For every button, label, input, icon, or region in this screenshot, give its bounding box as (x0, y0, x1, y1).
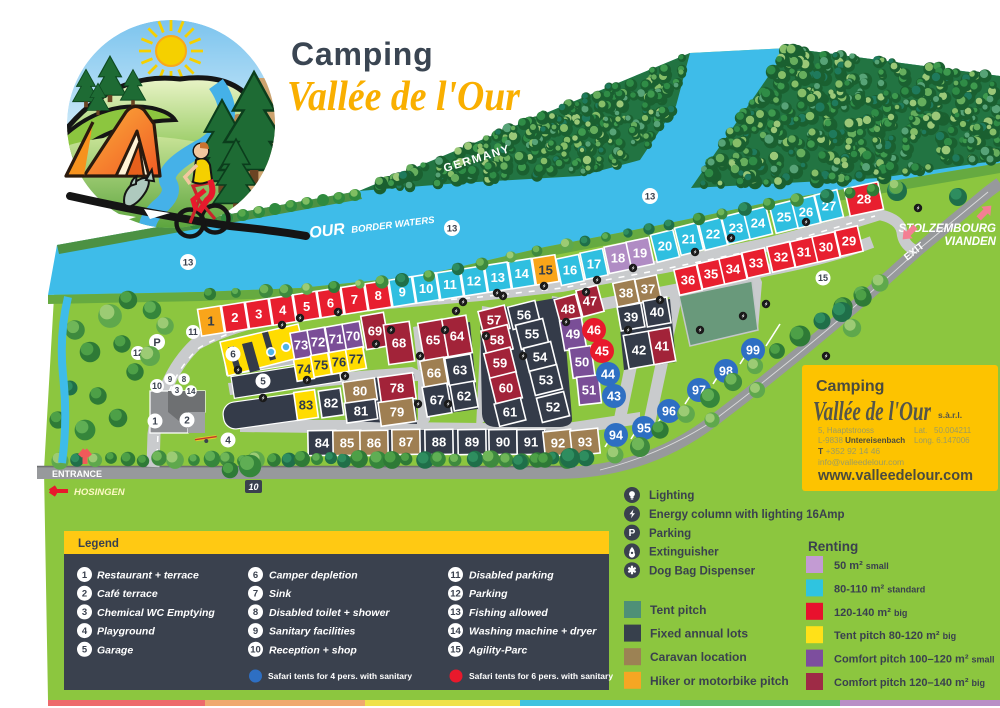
svg-text:13: 13 (447, 224, 458, 235)
svg-text:15: 15 (818, 273, 828, 283)
svg-text:80: 80 (353, 384, 367, 399)
svg-text:77: 77 (349, 352, 363, 367)
svg-text:83: 83 (299, 398, 313, 413)
svg-text:Hiker or motorbike pitch: Hiker or motorbike pitch (650, 674, 789, 688)
svg-text:91: 91 (524, 435, 538, 450)
svg-text:VIANDEN: VIANDEN (944, 236, 996, 248)
svg-text:75: 75 (314, 358, 328, 373)
svg-text:Energy column with lighting 16: Energy column with lighting 16Amp (649, 509, 845, 521)
svg-text:2: 2 (184, 416, 190, 427)
svg-text:Caravan location: Caravan location (650, 650, 747, 664)
svg-text:Disabled parking: Disabled parking (469, 570, 554, 582)
svg-text:ENTRANCE: ENTRANCE (52, 469, 102, 479)
svg-text:Comfort pitch 120–140 m² big: Comfort pitch 120–140 m² big (834, 677, 985, 689)
svg-text:14: 14 (450, 626, 461, 637)
svg-text:8: 8 (253, 607, 258, 618)
svg-text:49: 49 (566, 327, 580, 342)
svg-text:36: 36 (681, 273, 695, 288)
svg-text:9: 9 (168, 375, 173, 384)
svg-text:19: 19 (633, 246, 647, 261)
svg-text:76: 76 (332, 355, 346, 370)
svg-text:15: 15 (538, 263, 552, 278)
svg-text:✱: ✱ (627, 565, 636, 577)
svg-text:4: 4 (279, 303, 287, 318)
svg-text:7: 7 (351, 292, 358, 307)
svg-text:72: 72 (311, 335, 325, 350)
svg-text:Agility-Parc: Agility-Parc (468, 644, 528, 656)
svg-text:5, Haaptstrooss: 5, Haaptstrooss (818, 426, 874, 435)
svg-text:1: 1 (152, 417, 158, 428)
svg-text:Playground: Playground (97, 626, 155, 638)
svg-text:60: 60 (499, 381, 513, 396)
svg-text:80-110 m² standard: 80-110 m² standard (834, 583, 925, 595)
svg-text:3: 3 (82, 607, 87, 618)
svg-text:25: 25 (777, 210, 791, 225)
svg-text:Legend: Legend (78, 538, 119, 550)
svg-text:Lighting: Lighting (649, 490, 694, 502)
svg-text:39: 39 (624, 310, 638, 325)
svg-text:82: 82 (324, 396, 338, 411)
svg-text:3: 3 (255, 306, 262, 321)
svg-text:67: 67 (430, 393, 444, 408)
svg-text:T +352 92 14 46: T +352 92 14 46 (818, 446, 880, 456)
svg-text:51: 51 (582, 383, 596, 398)
svg-text:34: 34 (726, 262, 741, 277)
svg-text:10: 10 (250, 645, 261, 656)
svg-text:12: 12 (467, 274, 481, 289)
svg-text:Fishing allowed: Fishing allowed (469, 607, 548, 619)
svg-text:41: 41 (655, 339, 669, 354)
svg-text:10: 10 (419, 281, 433, 296)
svg-text:Camper depletion: Camper depletion (269, 570, 358, 582)
svg-text:92: 92 (551, 436, 565, 451)
svg-text:20: 20 (658, 239, 672, 254)
svg-text:68: 68 (392, 336, 406, 351)
svg-text:95: 95 (637, 421, 651, 435)
svg-text:5: 5 (260, 377, 266, 388)
svg-text:7: 7 (253, 589, 258, 600)
svg-text:59: 59 (493, 356, 507, 371)
svg-text:10: 10 (152, 381, 162, 391)
svg-text:62: 62 (457, 389, 471, 404)
svg-text:46: 46 (587, 323, 601, 337)
svg-text:18: 18 (611, 251, 625, 266)
svg-text:15: 15 (450, 645, 461, 656)
svg-text:Vallée de l'Our: Vallée de l'Our (287, 74, 521, 120)
svg-text:35: 35 (704, 267, 718, 282)
svg-text:42: 42 (632, 343, 646, 358)
svg-text:Garage: Garage (97, 644, 133, 656)
svg-text:13: 13 (450, 607, 461, 618)
svg-text:120-140 m² big: 120-140 m² big (834, 607, 907, 619)
svg-text:48: 48 (561, 302, 575, 317)
svg-text:85: 85 (340, 436, 354, 451)
svg-text:Dog Bag Dispenser: Dog Bag Dispenser (649, 565, 756, 577)
svg-text:87: 87 (399, 435, 413, 450)
svg-text:6: 6 (253, 570, 258, 581)
svg-text:17: 17 (587, 257, 601, 272)
svg-text:69: 69 (368, 324, 382, 339)
svg-text:Safari tents for 4 pers. with: Safari tents for 4 pers. with sanitary (268, 671, 412, 681)
svg-text:79: 79 (390, 405, 404, 420)
svg-text:Camping: Camping (816, 378, 884, 395)
svg-text:43: 43 (607, 389, 621, 403)
svg-text:1: 1 (207, 314, 214, 329)
svg-text:Long. 6.147006: Long. 6.147006 (914, 436, 970, 445)
svg-text:4: 4 (225, 436, 231, 447)
svg-text:50: 50 (575, 355, 589, 370)
svg-text:22: 22 (706, 227, 720, 242)
svg-text:73: 73 (294, 338, 308, 353)
svg-text:24: 24 (751, 216, 766, 231)
svg-text:64: 64 (450, 329, 465, 344)
svg-text:6: 6 (230, 350, 236, 361)
svg-text:55: 55 (525, 327, 539, 342)
svg-text:info@valleedelour.com: info@valleedelour.com (818, 457, 904, 467)
svg-text:21: 21 (682, 232, 696, 247)
svg-text:Fixed annual lots: Fixed annual lots (650, 627, 748, 641)
svg-text:33: 33 (749, 256, 763, 271)
svg-text:2: 2 (82, 589, 87, 600)
svg-text:s.à.r.l.: s.à.r.l. (938, 410, 962, 420)
svg-text:23: 23 (729, 221, 743, 236)
svg-text:52: 52 (546, 400, 560, 415)
svg-text:L-9838 Untereisenbach: L-9838 Untereisenbach (818, 436, 905, 445)
svg-text:Renting: Renting (808, 539, 858, 554)
svg-text:3: 3 (175, 386, 180, 395)
svg-text:Lat. 50.004211: Lat. 50.004211 (914, 426, 972, 435)
svg-text:8: 8 (375, 288, 382, 303)
svg-text:Reception + shop: Reception + shop (269, 644, 357, 656)
svg-text:9: 9 (253, 626, 258, 637)
svg-text:74: 74 (297, 362, 312, 377)
svg-text:32: 32 (774, 250, 788, 265)
svg-text:54: 54 (533, 350, 548, 365)
svg-text:13: 13 (645, 192, 656, 203)
svg-text:14: 14 (187, 387, 196, 396)
svg-text:53: 53 (539, 373, 553, 388)
svg-text:63: 63 (453, 363, 467, 378)
svg-text:26: 26 (799, 205, 813, 220)
svg-text:12: 12 (450, 589, 461, 600)
svg-text:57: 57 (487, 313, 501, 328)
svg-text:89: 89 (465, 435, 479, 450)
svg-text:40: 40 (650, 305, 664, 320)
svg-text:65: 65 (426, 333, 440, 348)
svg-text:6: 6 (327, 295, 334, 310)
svg-text:10: 10 (248, 482, 258, 492)
svg-text:14: 14 (514, 266, 529, 281)
svg-text:56: 56 (517, 308, 531, 323)
svg-text:Safari tents for 6 pers. with: Safari tents for 6 pers. with sanitary (469, 671, 613, 681)
svg-text:Tent pitch: Tent pitch (650, 603, 706, 617)
svg-text:4: 4 (82, 626, 88, 637)
svg-text:Camping: Camping (291, 36, 434, 72)
svg-text:16: 16 (563, 263, 577, 278)
svg-text:Sanitary facilities: Sanitary facilities (269, 626, 356, 638)
svg-text:93: 93 (578, 435, 592, 450)
svg-text:8: 8 (182, 375, 187, 384)
svg-text:11: 11 (188, 327, 198, 337)
svg-text:45: 45 (595, 344, 609, 358)
svg-text:96: 96 (662, 404, 676, 418)
svg-text:86: 86 (367, 436, 381, 451)
svg-text:30: 30 (819, 240, 833, 255)
svg-text:5: 5 (303, 299, 310, 314)
svg-text:Chemical WC Emptying: Chemical WC Emptying (97, 607, 215, 619)
svg-text:5: 5 (82, 645, 88, 656)
svg-text:50 m² small: 50 m² small (834, 560, 889, 572)
svg-text:88: 88 (432, 435, 446, 450)
svg-text:66: 66 (427, 366, 441, 381)
svg-text:13: 13 (183, 258, 194, 269)
svg-text:Parking: Parking (649, 528, 691, 540)
svg-text:www.valleedelour.com: www.valleedelour.com (817, 468, 973, 484)
svg-text:Restaurant + terrace: Restaurant + terrace (97, 570, 199, 582)
svg-text:Tent pitch 80-120 m² big: Tent pitch 80-120 m² big (834, 630, 956, 642)
svg-text:37: 37 (641, 282, 655, 297)
svg-text:70: 70 (346, 329, 360, 344)
svg-text:2: 2 (231, 310, 238, 325)
svg-text:99: 99 (746, 343, 760, 357)
svg-text:Extinguisher: Extinguisher (649, 547, 719, 559)
svg-text:Comfort pitch 100–120 m² small: Comfort pitch 100–120 m² small (834, 654, 995, 666)
svg-text:44: 44 (601, 367, 615, 381)
svg-text:Sink: Sink (269, 588, 292, 600)
svg-text:31: 31 (797, 245, 811, 260)
svg-text:71: 71 (329, 332, 343, 347)
svg-text:11: 11 (450, 570, 461, 581)
svg-text:84: 84 (315, 436, 330, 451)
svg-text:78: 78 (390, 381, 404, 396)
svg-text:Vallée de l'Our: Vallée de l'Our (813, 396, 931, 426)
svg-text:90: 90 (496, 435, 510, 450)
svg-text:1: 1 (82, 570, 88, 581)
svg-text:13: 13 (491, 270, 505, 285)
svg-text:94: 94 (609, 428, 623, 442)
svg-text:81: 81 (354, 404, 368, 419)
svg-text:Washing machine + dryer: Washing machine + dryer (469, 626, 597, 638)
svg-text:61: 61 (503, 405, 517, 420)
svg-text:58: 58 (490, 333, 504, 348)
svg-text:P: P (629, 528, 636, 539)
svg-text:Café terrace: Café terrace (97, 588, 158, 600)
svg-text:Parking: Parking (469, 588, 508, 600)
svg-text:38: 38 (619, 286, 633, 301)
svg-text:11: 11 (443, 277, 457, 292)
svg-text:29: 29 (842, 234, 856, 249)
svg-text:HOSINGEN: HOSINGEN (74, 487, 126, 498)
svg-text:Disabled toilet + shower: Disabled toilet + shower (269, 607, 390, 619)
